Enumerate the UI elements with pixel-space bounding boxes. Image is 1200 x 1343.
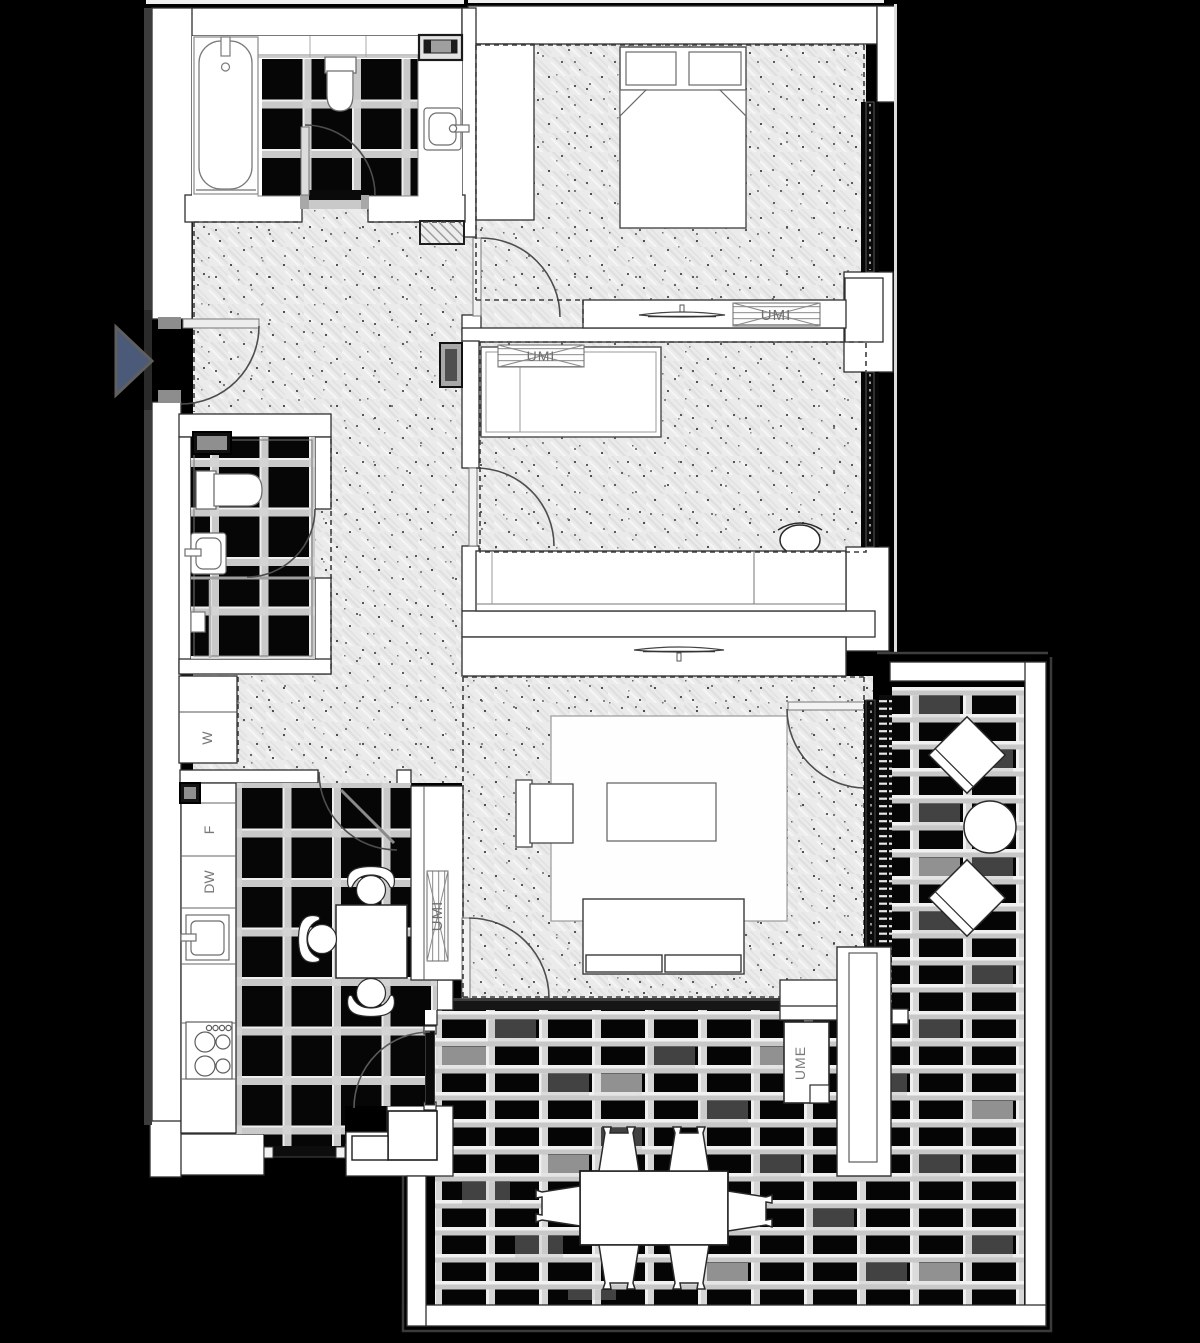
svg-text:UMI: UMI (527, 348, 556, 364)
svg-text:F: F (201, 826, 217, 835)
svg-text:UME: UME (792, 1046, 808, 1080)
svg-text:UMI: UMI (429, 901, 446, 932)
svg-text:W: W (199, 731, 215, 745)
svg-text:UMI: UMI (761, 307, 792, 324)
svg-text:DW: DW (201, 870, 217, 894)
